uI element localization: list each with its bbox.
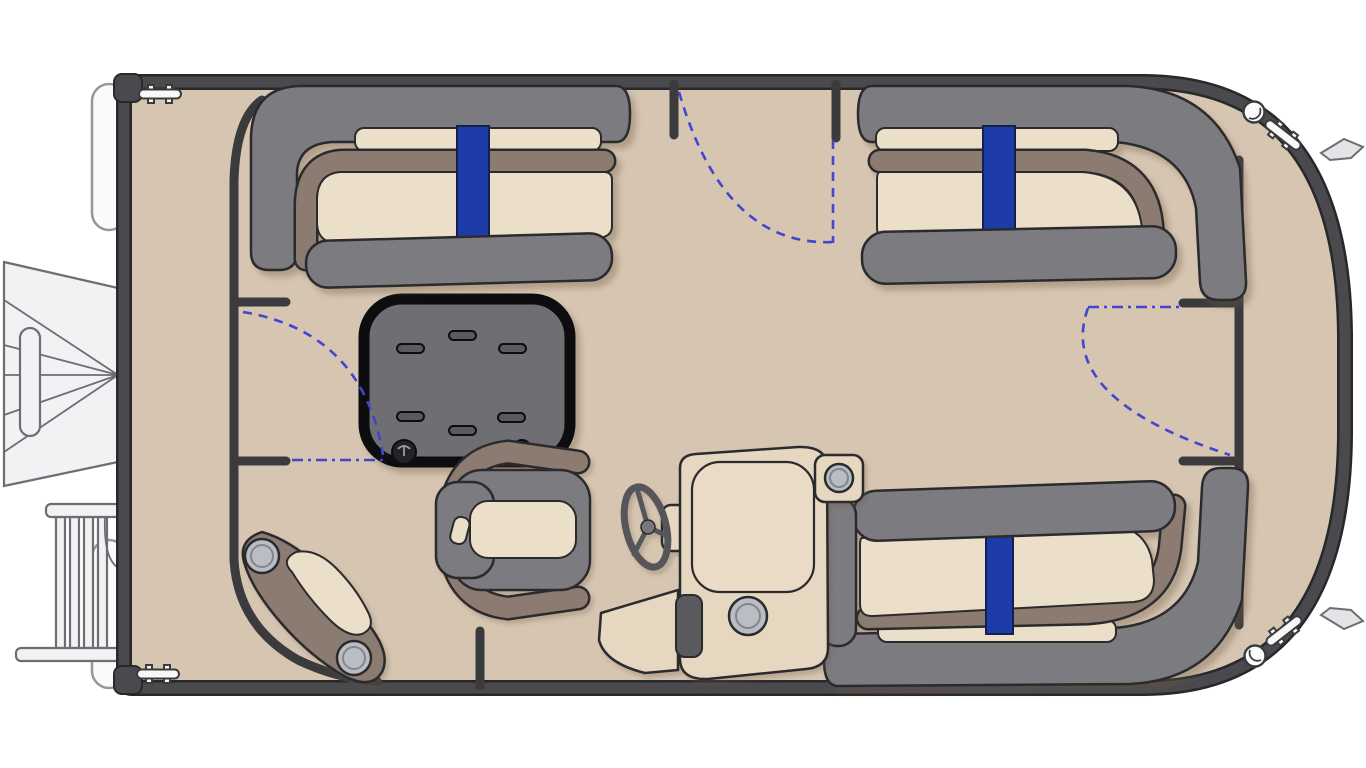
seat-base (305, 233, 612, 289)
stern-corner-cap-port (114, 74, 142, 102)
bow-fin-port-icon (1321, 139, 1363, 160)
seat-base (861, 226, 1176, 285)
bow-fin-starboard-icon (1321, 608, 1363, 629)
table-slot (498, 413, 525, 422)
aft-port-lounge-seat (251, 86, 630, 288)
accent-stripe (983, 126, 1015, 240)
table-slot (499, 344, 526, 353)
chair-cushion-insert (470, 501, 576, 558)
pontoon-floorplan (0, 0, 1366, 768)
table-slot (449, 426, 476, 435)
captain-chair (436, 452, 590, 608)
console-step-pad (676, 595, 702, 657)
table-slot (449, 331, 476, 340)
nav-light-icon-port (1244, 102, 1265, 123)
console-speaker-icon (729, 597, 767, 635)
accent-stripe (457, 126, 489, 240)
console-windscreen (692, 462, 814, 592)
floorplan-canvas (0, 0, 1366, 768)
accent-stripe (986, 528, 1013, 634)
table-slot (397, 344, 424, 353)
nav-light-icon-starboard (1245, 646, 1266, 667)
storage-table (364, 299, 570, 464)
seat-base (852, 480, 1176, 541)
table-slot (397, 412, 424, 421)
outboard-motor-icon (4, 262, 118, 486)
